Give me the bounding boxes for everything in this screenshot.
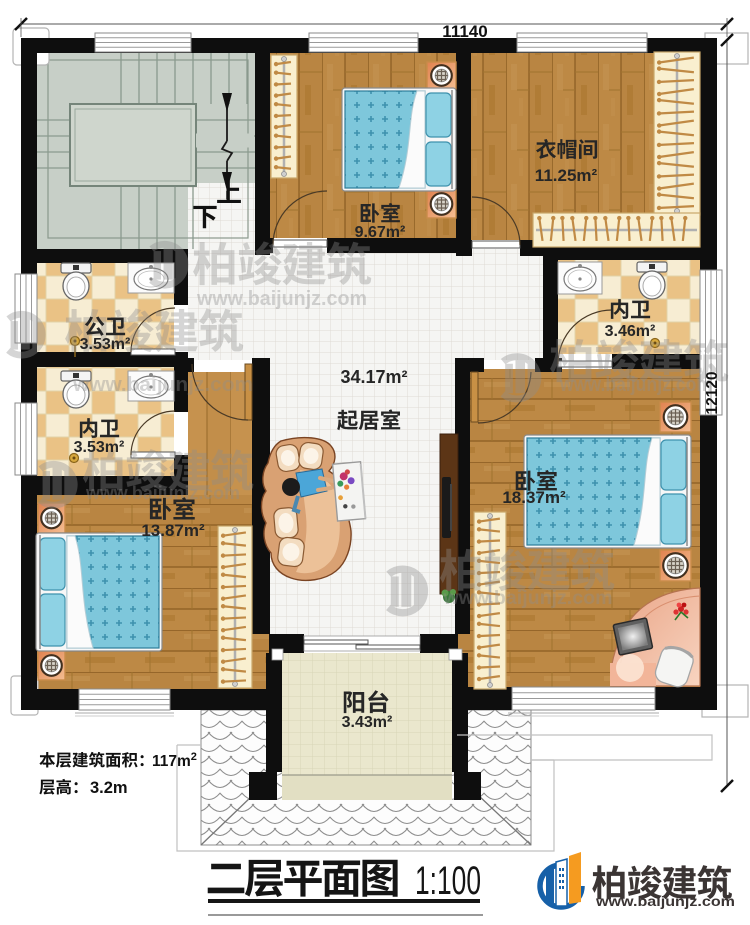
svg-text:13.87m²: 13.87m²: [141, 521, 205, 540]
svg-text:www.baijunjz.com: www.baijunjz.com: [72, 374, 253, 396]
svg-text:3.46m²: 3.46m²: [605, 323, 656, 340]
svg-text:12120: 12120: [704, 371, 721, 414]
svg-text:www.baijunjz.com: www.baijunjz.com: [595, 894, 735, 909]
svg-text:www.baijunjz.com: www.baijunjz.com: [85, 483, 240, 503]
svg-text:3.2m: 3.2m: [90, 779, 128, 797]
svg-text:11.25m²: 11.25m²: [535, 166, 598, 185]
svg-text:18.37m²: 18.37m²: [502, 488, 566, 507]
svg-text:117m2: 117m2: [152, 751, 197, 770]
svg-text:3.43m²: 3.43m²: [342, 714, 393, 731]
svg-text:www.baijunjz.com: www.baijunjz.com: [559, 374, 712, 396]
svg-text:34.17m²: 34.17m²: [340, 367, 407, 387]
svg-text:11140: 11140: [442, 22, 487, 41]
svg-text:9.67m²: 9.67m²: [355, 224, 406, 241]
svg-text:www.baijunjz.com: www.baijunjz.com: [442, 588, 612, 609]
svg-text:www.baijunjz.com: www.baijunjz.com: [196, 288, 367, 310]
svg-text:1:100: 1:100: [415, 859, 481, 903]
svg-text:3.53m²: 3.53m²: [80, 336, 131, 353]
svg-text:3.53m²: 3.53m²: [74, 439, 125, 456]
